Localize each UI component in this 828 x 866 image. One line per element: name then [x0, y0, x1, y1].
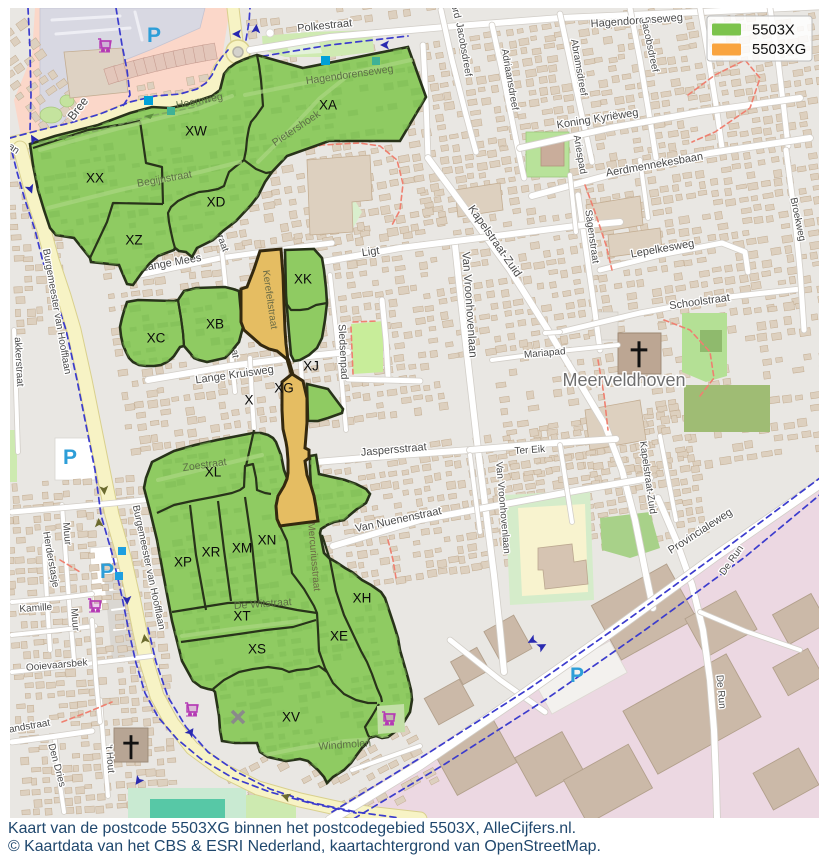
svg-text:XL: XL [205, 465, 222, 480]
svg-text:XP: XP [174, 555, 192, 570]
svg-text:XH: XH [353, 591, 372, 606]
svg-text:Kaart van de postcode 5503XG b: Kaart van de postcode 5503XG binnen het … [8, 820, 576, 837]
svg-text:XA: XA [319, 98, 337, 113]
svg-text:P: P [63, 446, 77, 469]
svg-text:XZ: XZ [125, 233, 142, 248]
svg-text:Kamille: Kamille [19, 602, 53, 615]
svg-text:XW: XW [185, 124, 207, 139]
svg-text:P: P [147, 24, 161, 47]
svg-text:Meerveldhoven: Meerveldhoven [562, 370, 685, 390]
svg-text:© Kaartdata van het CBS & ESRI: © Kaartdata van het CBS & ESRI Nederland… [8, 838, 601, 855]
svg-text:XE: XE [330, 629, 348, 644]
svg-text:XC: XC [147, 331, 166, 346]
svg-text:P: P [100, 560, 114, 583]
svg-text:Muur: Muur [60, 522, 73, 546]
svg-text:5503X: 5503X [752, 22, 795, 38]
svg-text:XR: XR [202, 545, 221, 560]
svg-text:XM: XM [232, 541, 252, 556]
svg-text:XG: XG [274, 381, 294, 396]
svg-text:Muur: Muur [68, 608, 81, 632]
svg-text:P: P [570, 664, 584, 687]
svg-text:XX: XX [86, 171, 104, 186]
svg-text:XV: XV [282, 710, 300, 725]
svg-text:XT: XT [233, 609, 250, 624]
svg-text:XD: XD [207, 195, 226, 210]
svg-text:XN: XN [258, 533, 277, 548]
svg-text:Ligt: Ligt [361, 245, 380, 259]
svg-text:XJ: XJ [303, 359, 319, 374]
svg-text:X: X [244, 393, 253, 408]
svg-text:Ter Eik: Ter Eik [514, 444, 546, 457]
svg-text:XK: XK [294, 272, 312, 287]
svg-text:XS: XS [248, 642, 266, 657]
svg-text:XB: XB [206, 317, 224, 332]
svg-text:5503XG: 5503XG [752, 42, 806, 58]
